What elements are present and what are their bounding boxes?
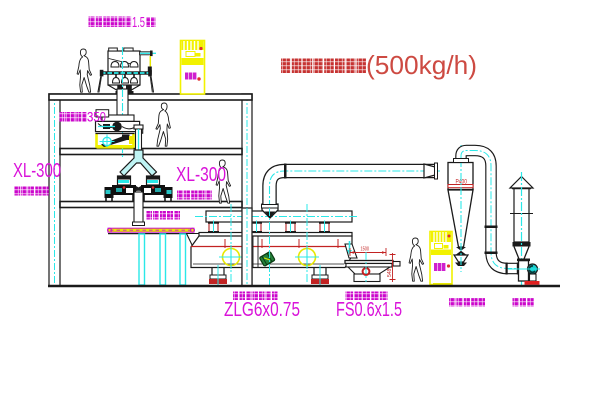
svg-text:XL-300: XL-300 (176, 164, 226, 186)
svg-text:548: 548 (387, 268, 393, 277)
svg-text:(500kg/h): (500kg/h) (366, 50, 477, 80)
svg-text:XL-300: XL-300 (13, 160, 61, 182)
svg-text:350: 350 (87, 109, 106, 125)
svg-text:1.5: 1.5 (132, 14, 145, 31)
svg-text:ZLG6x0.75: ZLG6x0.75 (224, 299, 300, 321)
svg-text:FS0.6x1.5: FS0.6x1.5 (336, 299, 402, 321)
svg-text:1500: 1500 (361, 247, 370, 253)
